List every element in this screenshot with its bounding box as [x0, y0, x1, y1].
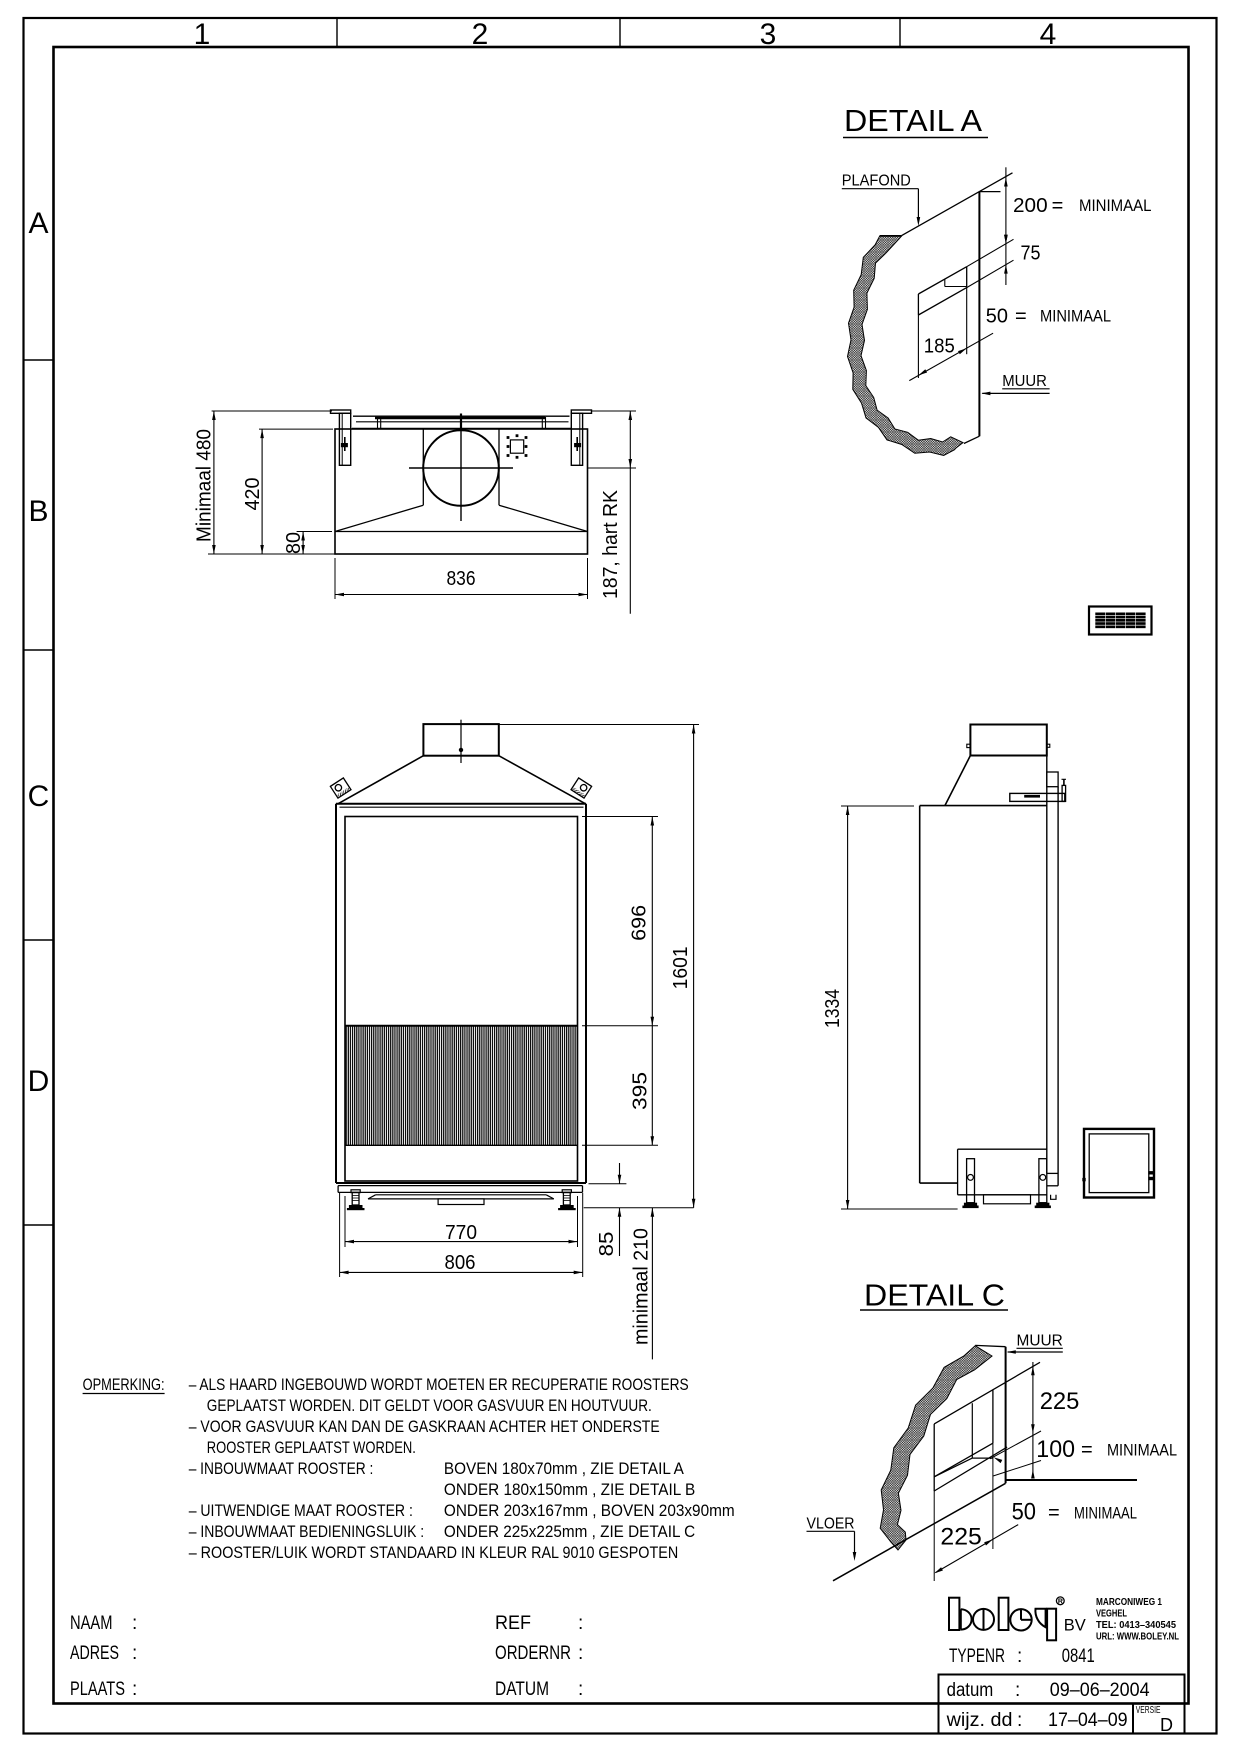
- svg-text:=: =: [1081, 1439, 1093, 1461]
- svg-text::: :: [132, 1643, 137, 1664]
- svg-text:D: D: [1160, 1715, 1173, 1735]
- svg-text:VERSIE: VERSIE: [1136, 1705, 1161, 1716]
- svg-text:TYPENR: TYPENR: [949, 1646, 1005, 1667]
- svg-text:80: 80: [283, 532, 305, 554]
- svg-text:187, hart RK: 187, hart RK: [600, 489, 622, 599]
- svg-text::: :: [578, 1643, 583, 1664]
- svg-text:URL: WWW.BOLEY.NL: URL: WWW.BOLEY.NL: [1096, 1631, 1179, 1643]
- svg-text:OPMERKING:: OPMERKING:: [83, 1375, 165, 1394]
- svg-text:ONDER 225x225mm , ZIE DETA: ONDER 225x225mm , ZIE DETAIL C: [444, 1522, 695, 1541]
- svg-text:BOVEN 180x70mm , ZIE DETAI: BOVEN 180x70mm , ZIE DETAIL A: [444, 1459, 685, 1478]
- svg-text:MARCONIWEG 1: MARCONIWEG 1: [1096, 1596, 1162, 1608]
- svg-text:185: 185: [924, 335, 955, 357]
- svg-text:– ALS HAARD INGEBOUWD WORD: – ALS HAARD INGEBOUWD WORDT MOETEN ER RE…: [189, 1375, 689, 1394]
- svg-text:ONDER 203x167mm , BOVEN 20: ONDER 203x167mm , BOVEN 203x90mm: [444, 1501, 735, 1520]
- svg-text:2: 2: [472, 18, 489, 51]
- svg-text:GEPLAATST WORDEN. DIT GELDT: GEPLAATST WORDEN. DIT GELDT VOOR GASVUUR…: [207, 1396, 652, 1415]
- svg-text:datum: datum: [947, 1680, 994, 1701]
- svg-text:VLOER: VLOER: [807, 1516, 855, 1533]
- svg-text:DETAIL A: DETAIL A: [844, 103, 982, 138]
- svg-text:100: 100: [1036, 1436, 1075, 1463]
- svg-text:DATUM: DATUM: [495, 1679, 549, 1700]
- svg-text:420: 420: [242, 478, 264, 511]
- svg-text:– VOOR GASVUUR KAN DAN DE: – VOOR GASVUUR KAN DAN DE GASKRAAN ACHTE…: [189, 1417, 660, 1436]
- svg-text:PLAFOND: PLAFOND: [842, 173, 911, 190]
- svg-text:R: R: [1058, 1599, 1063, 1606]
- svg-text:minimaal 210: minimaal 210: [631, 1228, 653, 1345]
- svg-text:225: 225: [1040, 1388, 1080, 1415]
- svg-text:1601: 1601: [670, 946, 692, 989]
- svg-text::: :: [1017, 1646, 1022, 1667]
- svg-text:=: =: [1052, 195, 1064, 217]
- svg-text:0841: 0841: [1062, 1646, 1095, 1667]
- svg-text:50: 50: [1012, 1499, 1036, 1526]
- svg-text:Minimaal 480: Minimaal 480: [194, 429, 216, 542]
- svg-text:REF: REF: [495, 1613, 531, 1634]
- svg-text:A: A: [28, 207, 48, 240]
- svg-text:– UITWENDIGE MAAT ROOSTER: – UITWENDIGE MAAT ROOSTER :: [189, 1501, 413, 1520]
- svg-text:ONDER 180x150mm , ZIE DETA: ONDER 180x150mm , ZIE DETAIL B: [444, 1480, 695, 1499]
- svg-text:17–04–09: 17–04–09: [1048, 1710, 1128, 1731]
- svg-text::: :: [578, 1613, 583, 1634]
- svg-text::: :: [1015, 1680, 1020, 1701]
- svg-text:1: 1: [194, 18, 211, 51]
- svg-text::: :: [132, 1613, 137, 1634]
- svg-text:– ROOSTER/LUIK WORDT STANDA: – ROOSTER/LUIK WORDT STANDAARD IN KLEUR …: [189, 1543, 679, 1562]
- svg-text:MINIMAAL: MINIMAAL: [1074, 1505, 1137, 1523]
- svg-text:VEGHEL: VEGHEL: [1096, 1608, 1127, 1620]
- svg-text:– INBOUWMAAT BEDIENINGSLUIK: – INBOUWMAAT BEDIENINGSLUIK :: [189, 1522, 425, 1541]
- svg-text:=: =: [1015, 306, 1027, 328]
- svg-text:200: 200: [1013, 195, 1048, 217]
- svg-text:D: D: [28, 1065, 50, 1098]
- svg-text:225: 225: [940, 1524, 981, 1551]
- svg-text::: :: [1017, 1710, 1022, 1731]
- svg-text::: :: [578, 1679, 583, 1700]
- svg-text:BV: BV: [1064, 1617, 1086, 1635]
- svg-text:MINIMAAL: MINIMAAL: [1040, 308, 1111, 326]
- svg-text:TEL: 0413–340545: TEL: 0413–340545: [1096, 1619, 1176, 1631]
- svg-text:770: 770: [445, 1222, 477, 1244]
- svg-text:3: 3: [760, 18, 777, 51]
- svg-text:836: 836: [447, 568, 476, 590]
- svg-text:C: C: [28, 780, 50, 813]
- svg-text:ADRES: ADRES: [70, 1643, 119, 1664]
- svg-text:696: 696: [629, 905, 651, 941]
- svg-text::: :: [132, 1679, 137, 1700]
- svg-text:75: 75: [1021, 242, 1041, 264]
- svg-text:09–06–2004: 09–06–2004: [1050, 1680, 1150, 1701]
- svg-text:4: 4: [1040, 18, 1057, 51]
- svg-text:DETAIL C: DETAIL C: [864, 1278, 1005, 1313]
- svg-text:B: B: [28, 495, 48, 528]
- svg-text:PLAATS: PLAATS: [70, 1679, 125, 1700]
- svg-text:395: 395: [630, 1072, 652, 1110]
- svg-text:85: 85: [596, 1232, 618, 1257]
- svg-text:MUUR: MUUR: [1017, 1333, 1063, 1350]
- svg-text:MINIMAAL: MINIMAAL: [1107, 1442, 1177, 1460]
- svg-text:ORDERNR: ORDERNR: [495, 1643, 571, 1664]
- svg-text:50: 50: [986, 306, 1008, 328]
- svg-text:MINIMAAL: MINIMAAL: [1079, 197, 1152, 215]
- svg-text:NAAM: NAAM: [70, 1613, 113, 1634]
- svg-text:1334: 1334: [822, 989, 844, 1028]
- svg-text:– INBOUWMAAT ROOSTER :: – INBOUWMAAT ROOSTER :: [189, 1459, 374, 1478]
- svg-text:=: =: [1048, 1502, 1060, 1524]
- svg-text:806: 806: [445, 1252, 476, 1274]
- svg-text:MUUR: MUUR: [1002, 373, 1047, 390]
- svg-text:wijz. dd: wijz. dd: [946, 1710, 1013, 1731]
- svg-text:ROOSTER GEPLAATST WORDEN.: ROOSTER GEPLAATST WORDEN.: [207, 1438, 416, 1457]
